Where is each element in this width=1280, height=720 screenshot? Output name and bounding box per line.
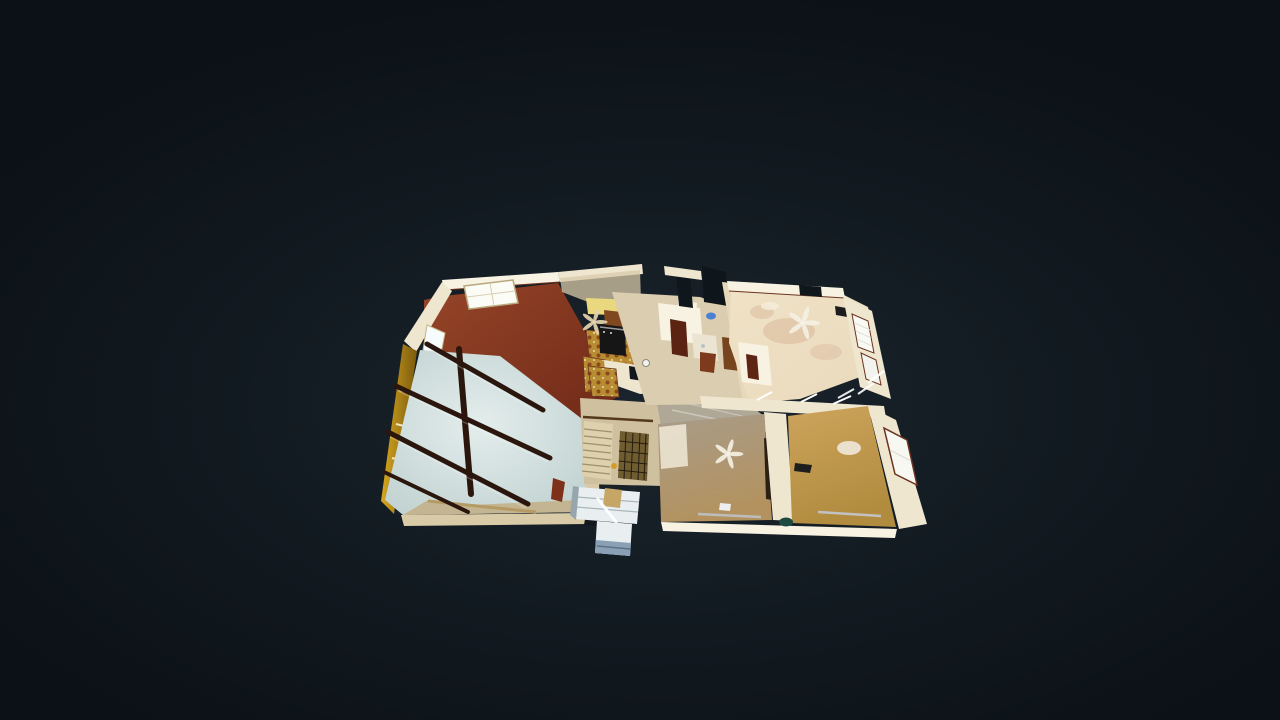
vanity-sink xyxy=(701,344,705,348)
north-doorway-gap xyxy=(799,285,822,297)
bedroom-north-window xyxy=(464,280,518,309)
closet-doors xyxy=(659,424,688,469)
viewer-canvas[interactable] xyxy=(0,0,1280,720)
stair-steps xyxy=(582,421,613,480)
stair-landing-rug xyxy=(588,366,619,397)
carpet-light-patch xyxy=(837,441,861,455)
plant xyxy=(779,518,793,527)
dollhouse-model[interactable] xyxy=(0,0,1280,720)
blue-chair xyxy=(706,313,716,320)
bedrooms-south[interactable] xyxy=(658,406,927,538)
stair-gate xyxy=(618,431,649,481)
closet-door xyxy=(746,354,759,380)
stove xyxy=(599,324,626,356)
stair-newel xyxy=(611,463,617,469)
wood-furniture xyxy=(700,352,716,373)
bath-door xyxy=(670,319,688,357)
sunroom-south-wall xyxy=(401,513,587,526)
wall-clock xyxy=(643,360,650,367)
paper-on-floor xyxy=(719,503,731,511)
porch-mat xyxy=(603,488,622,508)
